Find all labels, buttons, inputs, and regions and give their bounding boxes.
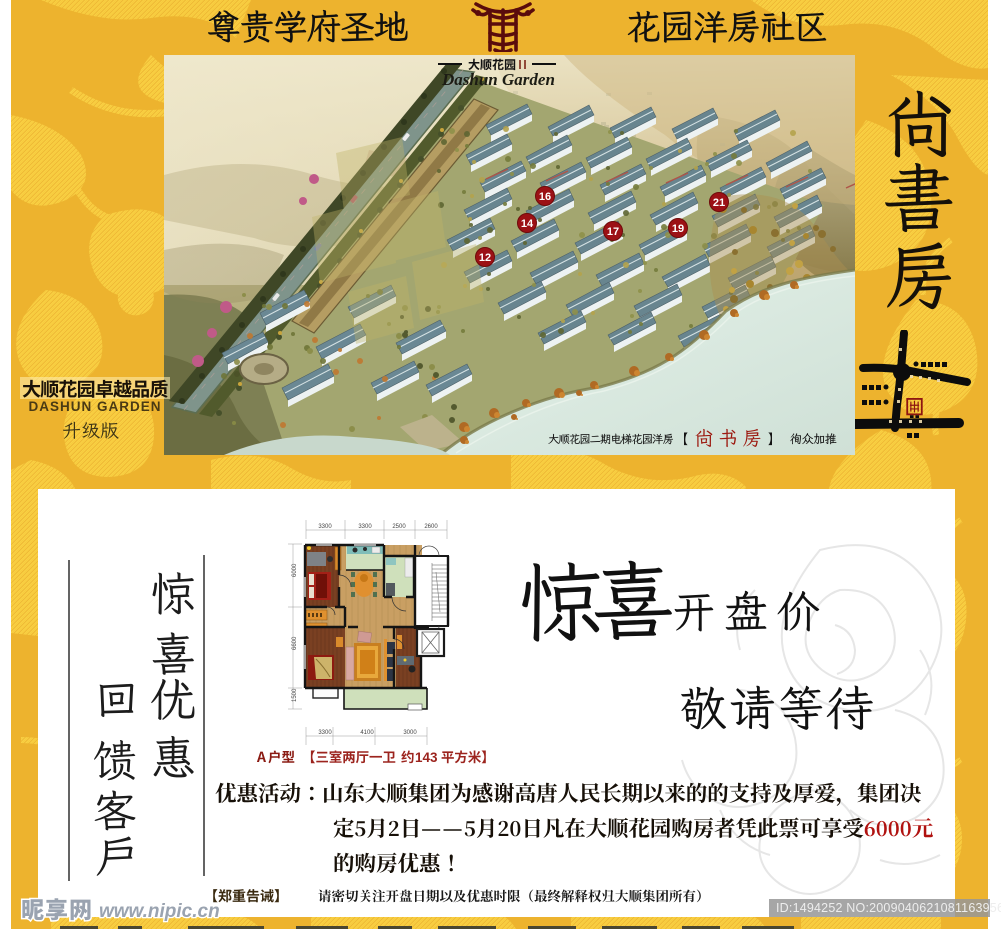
- svg-text:3300: 3300: [318, 730, 332, 736]
- svg-text:2600: 2600: [424, 524, 438, 530]
- svg-text:www.nipic.cn: www.nipic.cn: [99, 901, 220, 922]
- svg-text:3300: 3300: [358, 524, 372, 530]
- svg-text:4100: 4100: [360, 730, 374, 736]
- svg-text:3300: 3300: [318, 524, 332, 530]
- svg-text:143: 143: [415, 750, 438, 765]
- svg-text:2500: 2500: [392, 524, 406, 530]
- svg-text:3000: 3000: [403, 730, 417, 736]
